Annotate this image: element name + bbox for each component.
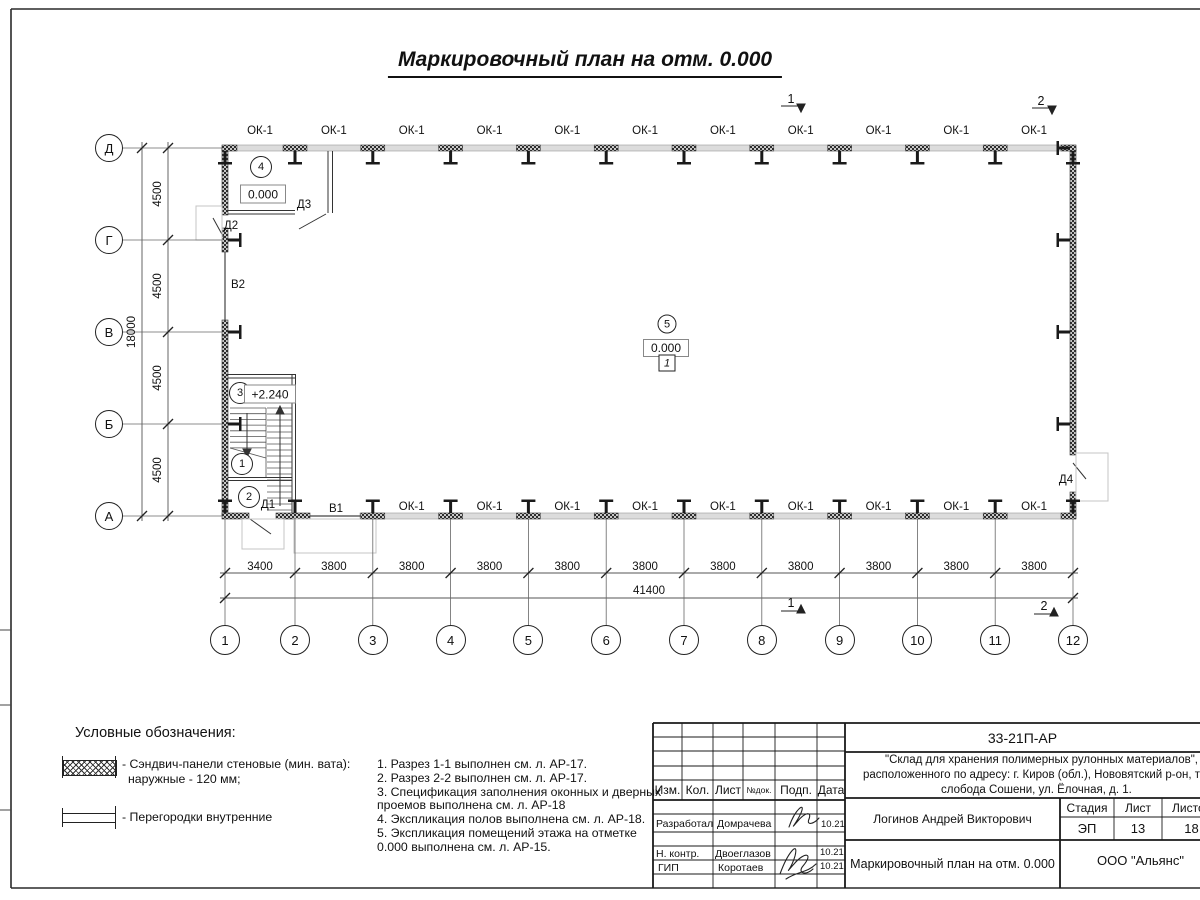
titleblock-date-developer: 10.21 (821, 819, 845, 830)
dimension-label: 4500 (152, 365, 164, 391)
titleblock-stage-label: Стадия (1060, 798, 1114, 817)
elevation-mark: 0.000 (240, 185, 286, 204)
grid-bubble-column: 12 (1058, 625, 1088, 655)
dimension-label: 3800 (866, 561, 892, 573)
dimension-label: 4500 (152, 273, 164, 299)
window-label: ОК-1 (399, 125, 425, 137)
titleblock-drawing-title: Маркировочный план на отм. 0.000 (845, 840, 1060, 888)
exterior-walls (222, 148, 1076, 519)
note-line: 0.000 выполнена см. л. АР-15. (377, 840, 551, 854)
titleblock-sheet-label: Лист (1114, 798, 1162, 817)
dimension-label: 3800 (1021, 561, 1047, 573)
dimension-label: 4500 (152, 181, 164, 207)
room-tag: 4 (250, 156, 272, 178)
section-marker: 2 (1038, 94, 1045, 108)
titleblock-sheets-value: 18 (1162, 817, 1200, 840)
room-tag: 2 (238, 486, 260, 508)
window-label: ОК-1 (399, 501, 425, 513)
titleblock-doc-number: 33-21П-АР (845, 723, 1200, 752)
legend-item-2-line-1: - Перегородки внутренние (122, 810, 272, 824)
titleblock-stage-value: ЭП (1060, 817, 1114, 840)
opening-label: Д1 (261, 499, 275, 511)
dimension-label: 3800 (788, 561, 814, 573)
legend-symbol-tick (115, 756, 116, 778)
window-label: ОК-1 (632, 125, 658, 137)
window-label: ОК-1 (788, 501, 814, 513)
grid-bubble-row: В (95, 318, 123, 346)
grid-bubble-column: 3 (358, 625, 388, 655)
dimension-label: 3800 (710, 561, 736, 573)
window-label: ОК-1 (477, 501, 503, 513)
elevation-mark: +2.240 (244, 385, 296, 404)
titleblock-header-data: Дата (817, 780, 845, 800)
room-tag: 1 (231, 453, 253, 475)
drawing-sheet: Маркировочный план на отм. 0.000 ОК-1ОК-… (0, 0, 1200, 900)
dimension-label: 4500 (152, 457, 164, 483)
titleblock-sheets-label: Листов (1162, 798, 1200, 817)
window-label: ОК-1 (632, 501, 658, 513)
legend-partition-symbol (63, 822, 115, 823)
titleblock-project-line-1: "Склад для хранения полимерных рулонных … (885, 754, 1198, 766)
titleblock-author: Логинов Андрей Викторович (845, 798, 1060, 840)
section-marker: 2 (1041, 599, 1048, 613)
grid-bubble-column: 11 (980, 625, 1010, 655)
window-label: ОК-1 (247, 125, 273, 137)
grid-bubble-column: 10 (902, 625, 932, 655)
titleblock-header-kol: Кол. (682, 780, 713, 800)
section-marker-arrows (781, 104, 1058, 616)
note-line: 1. Разрез 1-1 выполнен см. л. АР-17. (377, 757, 587, 771)
window-label: ОК-1 (788, 125, 814, 137)
room-tag: 5 (658, 315, 677, 334)
note-line: 3. Спецификация заполнения оконных и две… (377, 785, 661, 799)
grid-bubble-column: 6 (591, 625, 621, 655)
dimension-total-label: 41400 (633, 585, 665, 597)
opening-label: В1 (329, 503, 343, 515)
signature-scribbles (780, 807, 819, 879)
window-label: ОК-1 (943, 501, 969, 513)
legend-sandwich-panel-symbol (63, 760, 117, 776)
legend-symbol-tick (62, 756, 63, 778)
titleblock-header-izm: Изм. (653, 780, 682, 800)
titleblock-date-ncontrol: 10.21 (820, 847, 844, 858)
dimension-label: 3800 (477, 561, 503, 573)
dimension-total-label: 18000 (126, 316, 138, 348)
titleblock-project-line-3: слобода Сошени, ул. Ёлочная, д. 1. (941, 784, 1132, 796)
window-label: ОК-1 (554, 501, 580, 513)
window-label: ОК-1 (866, 501, 892, 513)
legend-header: Условные обозначения: (75, 725, 236, 741)
titleblock-name-developer: Домрачева (717, 818, 771, 830)
window-label: ОК-1 (866, 125, 892, 137)
section-marker: 1 (788, 92, 795, 106)
frame-edge-ticks (0, 630, 11, 810)
opening-label: В2 (231, 279, 245, 291)
grid-bubble-column: 9 (825, 625, 855, 655)
dimension-label: 3800 (944, 561, 970, 573)
window-label: ОК-1 (710, 501, 736, 513)
titleblock-project-line-2: расположенного по адресу: г. Киров (обл.… (863, 769, 1200, 781)
note-line: 5. Экспликация помещений этажа на отметк… (377, 826, 637, 840)
section-marker: 1 (788, 596, 795, 610)
window-label: ОК-1 (943, 125, 969, 137)
window-label: ОК-1 (710, 125, 736, 137)
window-label: ОК-1 (477, 125, 503, 137)
legend-item-1-line-2: наружные - 120 мм; (128, 772, 241, 786)
grid-bubble-row: Г (95, 226, 123, 254)
grid-bubble-column: 4 (436, 625, 466, 655)
legend-partition-symbol (63, 813, 115, 814)
dimension-label: 3800 (555, 561, 581, 573)
titleblock-role-gip: ГИП (658, 862, 679, 874)
window-label: ОК-1 (554, 125, 580, 137)
door-leaves (213, 214, 1086, 534)
dimension-label: 3800 (632, 561, 658, 573)
titleblock-header-podp: Подп. (775, 780, 817, 800)
titleblock-name-gip: Коротаев (718, 862, 763, 874)
wall-piers-and-columns (218, 141, 1080, 519)
page-title: Маркировочный план на отм. 0.000 (388, 48, 782, 78)
note-line: 2. Разрез 2-2 выполнен см. л. АР-17. (377, 771, 587, 785)
window-bands (222, 145, 1076, 519)
titleblock-company: ООО "Альянс" (1060, 840, 1200, 880)
titleblock-role-developer: Разработал (656, 818, 713, 830)
grid-bubble-row: А (95, 502, 123, 530)
floor-type-mark: 1 (659, 355, 676, 372)
note-line: 4. Экспликация полов выполнена см. л. АР… (377, 812, 645, 826)
window-label: ОК-1 (1021, 125, 1047, 137)
window-label: ОК-1 (1021, 501, 1047, 513)
grid-bubble-column: 2 (280, 625, 310, 655)
legend-symbol-tick (62, 808, 63, 827)
titleblock-name-ncontrol: Двоеглазов (715, 848, 771, 860)
dimension-label: 3800 (321, 561, 347, 573)
grid-bubble-column: 8 (747, 625, 777, 655)
opening-label: Д3 (297, 199, 311, 211)
dimension-label: 3800 (399, 561, 425, 573)
note-line: проемов выполнена см. л. АР-18 (377, 798, 566, 812)
titleblock-header-list: Лист (713, 780, 743, 800)
titleblock-role-ncontrol: Н. контр. (656, 848, 699, 860)
legend-symbol-tick (115, 806, 116, 829)
titleblock-header-ndok: №док. (743, 780, 775, 800)
legend-item-1-line-1: - Сэндвич-панели стеновые (мин. вата): (122, 757, 350, 771)
grid-bubble-row: Д (95, 134, 123, 162)
window-label: ОК-1 (321, 125, 347, 137)
grid-bubble-row: Б (95, 410, 123, 438)
dimension-label: 3400 (247, 561, 273, 573)
grid-bubble-column: 5 (513, 625, 543, 655)
opening-label: Д2 (224, 220, 238, 232)
grid-bubble-column: 1 (210, 625, 240, 655)
dimension-ticks (137, 143, 1078, 603)
opening-label: Д4 (1059, 474, 1073, 486)
titleblock-date-gip: 10.21 (820, 861, 844, 872)
titleblock-sheet-value: 13 (1114, 817, 1162, 840)
grid-bubble-column: 7 (669, 625, 699, 655)
